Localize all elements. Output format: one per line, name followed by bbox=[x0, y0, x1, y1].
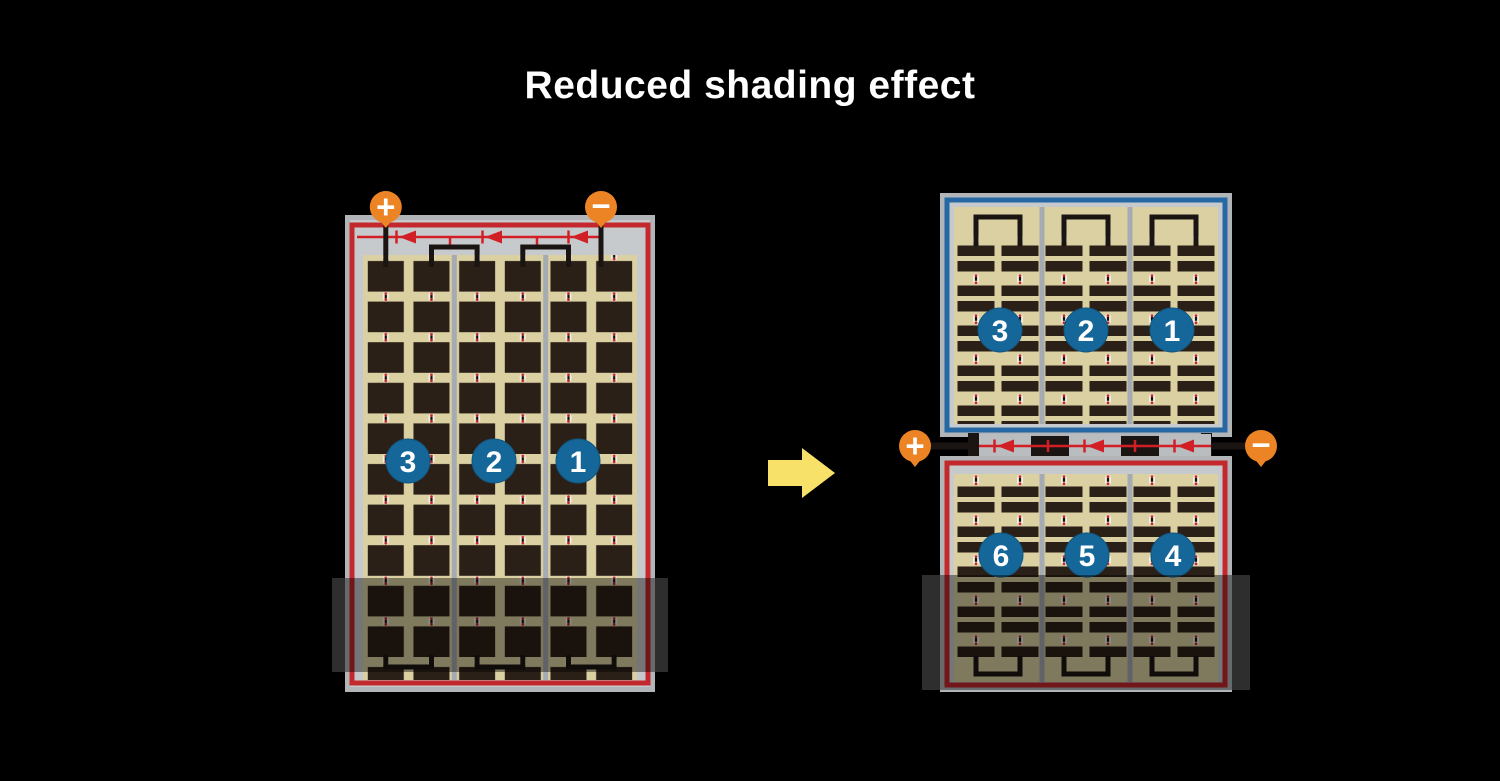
plus-label: + bbox=[376, 188, 395, 225]
right-arrow-icon bbox=[768, 448, 835, 498]
right-plus-terminal: + bbox=[899, 427, 931, 467]
plus-label: + bbox=[905, 427, 924, 464]
shade-edge bbox=[1232, 575, 1250, 690]
junction-bar bbox=[968, 433, 979, 459]
shade-edge bbox=[655, 578, 668, 672]
shade-edge bbox=[332, 578, 345, 672]
string-number: 3 bbox=[400, 446, 417, 479]
shade-edge bbox=[922, 575, 940, 690]
cell-area-margin bbox=[954, 207, 1218, 233]
string-divider bbox=[1040, 207, 1045, 424]
transform-arrow-icon bbox=[760, 440, 850, 510]
right-junction-strip bbox=[928, 433, 1252, 459]
shade-band bbox=[940, 575, 1232, 690]
right-minus-terminal: − bbox=[1245, 426, 1277, 467]
page-title: Reduced shading effect bbox=[0, 64, 1500, 108]
minus-label: − bbox=[591, 187, 610, 224]
left-string-badges: 3 2 1 bbox=[386, 439, 600, 483]
string-number: 3 bbox=[992, 315, 1009, 348]
left-shade-overlay bbox=[332, 578, 668, 672]
left-panel-module: + − 3 2 1 bbox=[325, 185, 675, 697]
right-panel-module: 3 2 1 bbox=[880, 180, 1300, 700]
string-number: 2 bbox=[1078, 315, 1095, 348]
string-number: 2 bbox=[486, 446, 503, 479]
minus-label: − bbox=[1251, 426, 1270, 463]
string-number: 1 bbox=[1164, 315, 1181, 348]
string-divider bbox=[1128, 207, 1133, 424]
right-shade-overlay bbox=[922, 575, 1250, 690]
string-number: 1 bbox=[570, 446, 587, 479]
shade-band bbox=[345, 578, 655, 672]
string-number: 5 bbox=[1079, 540, 1096, 573]
string-number: 4 bbox=[1165, 540, 1182, 573]
diagram-canvas: Reduced shading effect bbox=[0, 0, 1500, 781]
string-number: 6 bbox=[993, 540, 1010, 573]
right-top-substring: 3 2 1 bbox=[940, 193, 1232, 437]
